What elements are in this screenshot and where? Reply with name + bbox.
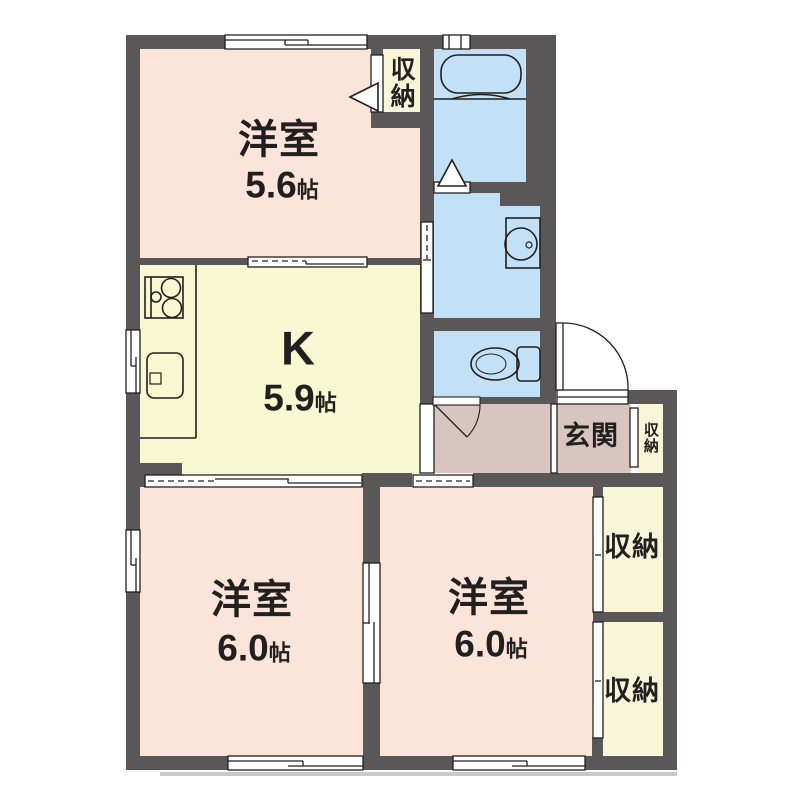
- closet-door-east-upper: [593, 497, 603, 612]
- bathtub-icon: [434, 55, 526, 99]
- entry-label: 玄関: [563, 422, 619, 450]
- sliding-door-hall-bottomright: [413, 475, 473, 487]
- genkan-step-line: [551, 404, 557, 473]
- plan-linework: [0, 0, 800, 800]
- entry-door: [556, 323, 628, 404]
- sliding-door-toproom-kitchen: [248, 257, 367, 267]
- fixtures: [140, 55, 540, 438]
- window-bathroom: [443, 35, 470, 49]
- window-kitchen-left: [126, 330, 140, 393]
- closet-door-genkan: [630, 408, 638, 467]
- window-bottom-right-room: [453, 756, 585, 770]
- floor-plan: 洋室 5.6帖 K 5.9帖 洋室 6.0帖 洋室 6.0帖 玄関 収納 収納 …: [0, 0, 800, 800]
- closet-label-east-lower: 収納: [604, 677, 660, 705]
- sliding-door-bottom-rooms: [363, 563, 380, 683]
- room-label-west-bottom-right: 洋室: [448, 577, 530, 619]
- room-label-kitchen: K: [281, 323, 315, 372]
- stove-icon: [145, 277, 183, 318]
- closet-label-top: 収納: [388, 56, 414, 110]
- room-size-kitchen: 5.9帖: [263, 380, 336, 419]
- room-label-west-top: 洋室: [238, 119, 320, 161]
- closet-label-east-upper: 収納: [604, 533, 660, 561]
- window-bottom-left-room-side: [126, 530, 140, 592]
- ground-shadow-line: [160, 772, 677, 776]
- sliding-door-kitchen-hall: [420, 404, 434, 473]
- folding-door-closet-top: [350, 55, 383, 112]
- room-size-west-top: 5.6帖: [245, 167, 318, 206]
- room-label-west-bottom-left: 洋室: [211, 579, 293, 621]
- sliding-door-kitchen-bottomleft: [145, 475, 362, 487]
- washbasin-icon: [505, 218, 540, 268]
- folding-door-bathroom: [434, 160, 470, 193]
- room-size-west-bottom-right: 6.0帖: [454, 626, 527, 665]
- window-bottom-left-room: [228, 756, 363, 770]
- closet-door-east-lower: [593, 622, 603, 738]
- closet-label-genkan: 収納: [642, 422, 658, 454]
- room-size-west-bottom-left: 6.0帖: [217, 630, 290, 669]
- window-top-room: [225, 35, 367, 49]
- kitchen-counter: [140, 265, 196, 438]
- kitchen-sink-icon: [147, 353, 183, 398]
- sliding-door-kitchen-washroom: [421, 222, 433, 313]
- toilet-icon: [471, 347, 540, 381]
- toilet-door: [433, 397, 480, 437]
